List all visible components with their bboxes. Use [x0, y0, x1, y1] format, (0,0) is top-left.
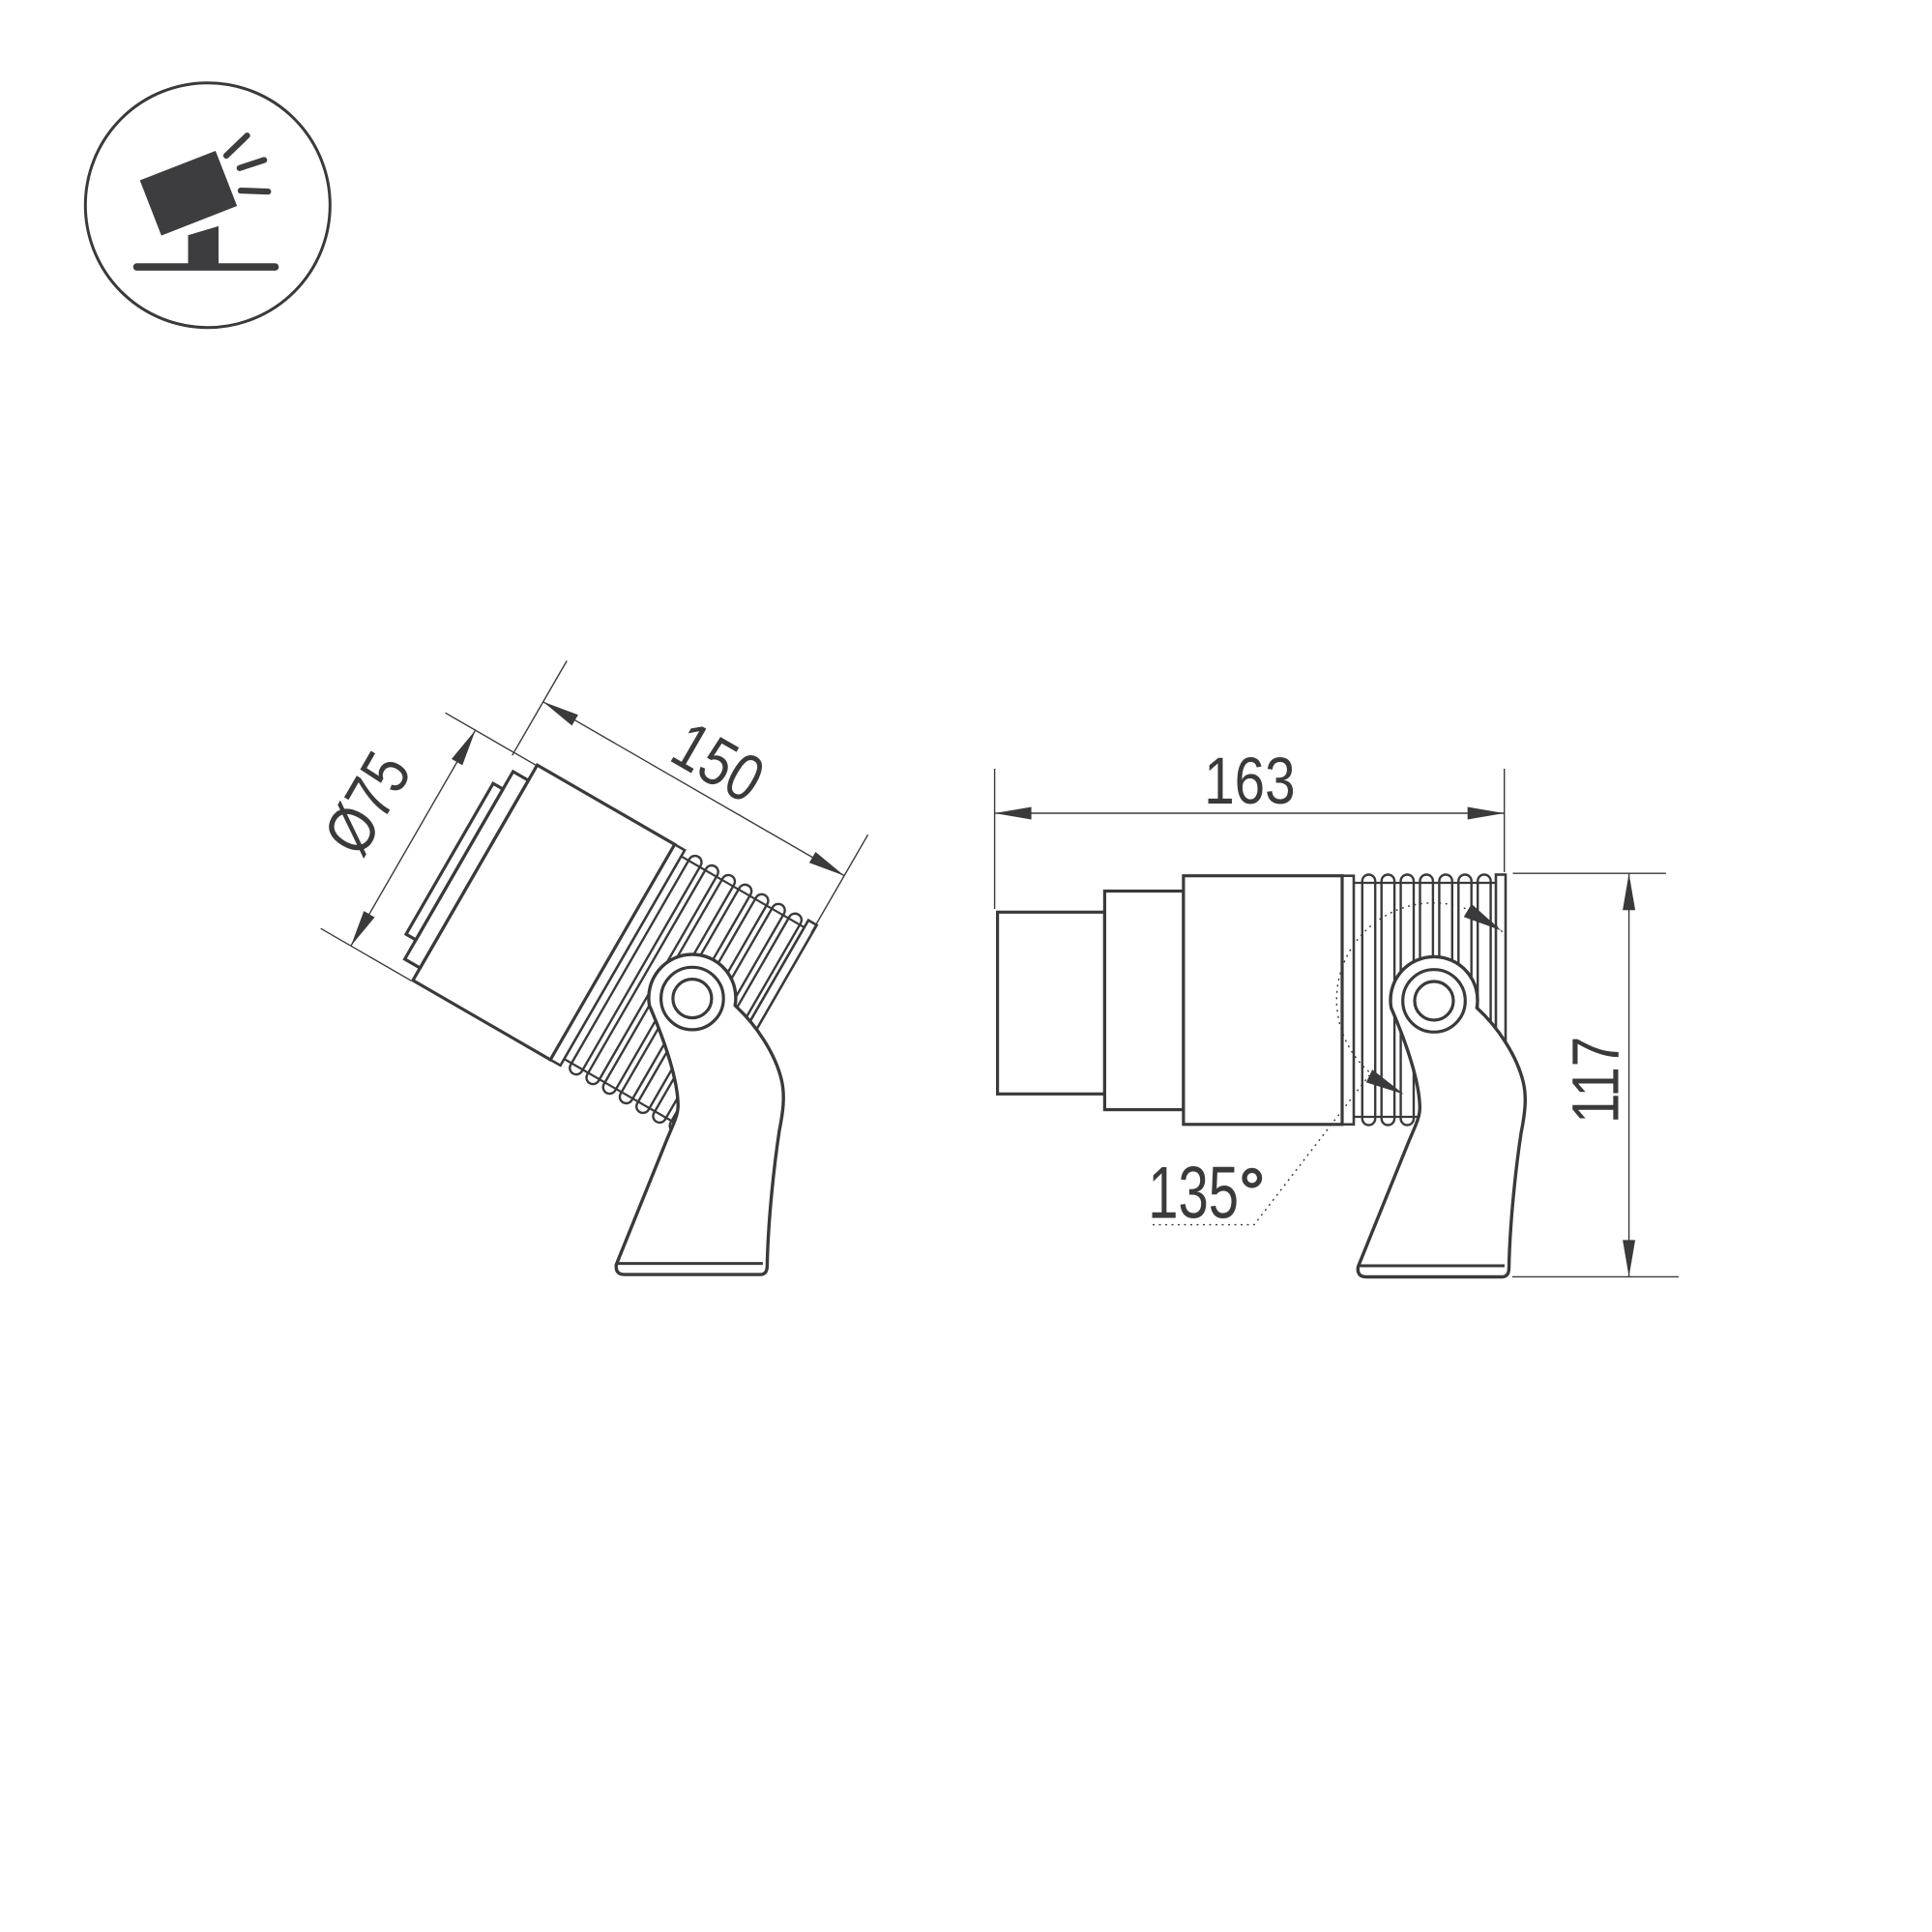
svg-text:135: 135 — [1148, 1152, 1239, 1234]
svg-text:163: 163 — [1204, 745, 1295, 819]
svg-text:117: 117 — [1559, 1037, 1633, 1124]
